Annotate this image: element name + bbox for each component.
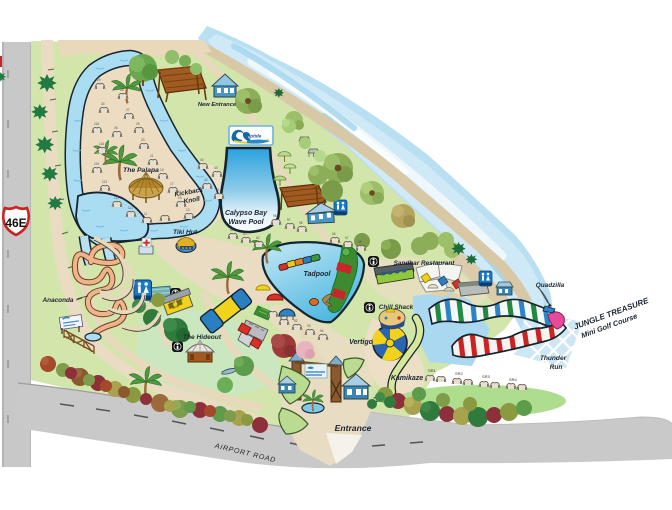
svg-text:94: 94: [320, 329, 324, 333]
svg-text:26: 26: [114, 126, 118, 130]
svg-text:30: 30: [101, 102, 105, 106]
svg-text:17: 17: [170, 182, 174, 186]
svg-text:The Hideout: The Hideout: [183, 334, 222, 341]
svg-text:91: 91: [281, 314, 285, 318]
svg-text:41: 41: [216, 188, 220, 192]
svg-text:62: 62: [256, 236, 260, 240]
svg-text:29: 29: [97, 78, 101, 82]
svg-text:118: 118: [94, 122, 99, 126]
svg-text:21: 21: [150, 154, 154, 158]
svg-text:98: 98: [299, 221, 303, 225]
svg-text:The Palapa: The Palapa: [123, 167, 159, 174]
svg-text:25: 25: [136, 122, 140, 126]
svg-text:44: 44: [200, 158, 204, 162]
svg-text:111: 111: [128, 206, 133, 210]
svg-text:SR2: SR2: [455, 371, 464, 376]
svg-text:iptide: iptide: [249, 134, 262, 139]
svg-text:SR4: SR4: [509, 377, 518, 382]
svg-text:Sandbar Restaurant: Sandbar Restaurant: [394, 260, 456, 267]
svg-text:Chill Shack: Chill Shack: [379, 304, 414, 311]
svg-text:SR1: SR1: [428, 368, 437, 373]
svg-text:13: 13: [186, 208, 190, 212]
svg-text:19: 19: [160, 168, 164, 172]
svg-text:Run: Run: [550, 364, 563, 371]
svg-text:68: 68: [358, 240, 362, 244]
svg-text:Quadzilla: Quadzilla: [536, 282, 565, 289]
svg-text:23: 23: [141, 138, 145, 142]
svg-text:64: 64: [230, 228, 234, 232]
svg-text:113: 113: [102, 180, 107, 184]
svg-text:Thunder: Thunder: [540, 355, 567, 362]
svg-text:115: 115: [94, 162, 99, 166]
svg-text:93: 93: [307, 324, 311, 328]
svg-text:42: 42: [204, 178, 208, 182]
svg-text:66: 66: [332, 232, 336, 236]
svg-text:116: 116: [99, 142, 104, 146]
svg-text:11: 11: [144, 212, 148, 216]
svg-text:96: 96: [273, 214, 277, 218]
svg-text:112: 112: [114, 196, 119, 200]
svg-text:SR3: SR3: [482, 374, 491, 379]
svg-text:Vertigo: Vertigo: [349, 339, 374, 346]
svg-text:Tadpool: Tadpool: [304, 271, 332, 278]
svg-text:63: 63: [243, 232, 247, 236]
svg-text:Anaconda: Anaconda: [42, 297, 74, 304]
svg-text:27: 27: [126, 108, 130, 112]
svg-text:28: 28: [120, 88, 124, 92]
svg-text:97: 97: [287, 218, 291, 222]
svg-text:Tiki Hut: Tiki Hut: [173, 229, 198, 236]
svg-text:43: 43: [214, 166, 218, 170]
svg-text:New Entrance: New Entrance: [198, 102, 237, 108]
svg-text:Wave Pool: Wave Pool: [228, 219, 264, 226]
svg-text:Kamikaze: Kamikaze: [391, 375, 423, 382]
svg-text:92: 92: [294, 319, 298, 323]
svg-text:46E: 46E: [5, 216, 26, 230]
svg-text:Calypso Bay: Calypso Bay: [225, 210, 268, 217]
svg-text:Entrance: Entrance: [335, 423, 372, 433]
svg-text:67: 67: [345, 236, 349, 240]
